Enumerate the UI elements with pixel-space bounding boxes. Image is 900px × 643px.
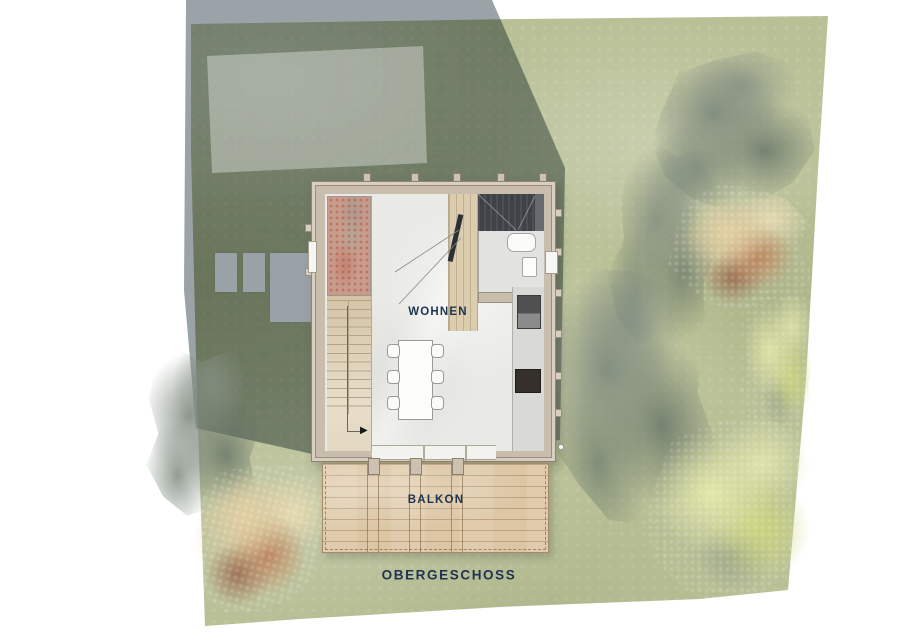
window xyxy=(308,241,317,273)
balcony-railing xyxy=(325,466,546,550)
door-mullion xyxy=(465,446,467,461)
house-floor-plan: ▶ xyxy=(311,181,556,462)
room-label-living: WOHNEN xyxy=(408,306,468,318)
floor-caption: OBERGESCHOSS xyxy=(382,568,517,583)
roof-dormer xyxy=(243,253,265,292)
facade-post xyxy=(363,173,371,182)
balcony-door-post xyxy=(452,458,464,475)
wall-anchor-tab xyxy=(555,330,562,338)
window xyxy=(545,251,558,274)
wall-anchor-tab xyxy=(555,289,562,297)
balcony-door-post xyxy=(368,458,380,475)
room-label-balcony: BALKON xyxy=(408,494,464,506)
roof-dormer xyxy=(215,253,237,292)
balcony-door-post xyxy=(410,458,422,475)
door-mullion xyxy=(423,446,425,461)
south-glass-doors xyxy=(372,445,496,460)
facade-post xyxy=(539,173,547,182)
downspout-marker xyxy=(558,444,564,450)
facade-post xyxy=(497,173,505,182)
site-plan-canvas: ▶ xyxy=(0,0,900,643)
facade-post xyxy=(411,173,419,182)
roof-dormer xyxy=(270,253,312,322)
wall-anchor-tab xyxy=(305,224,312,232)
wall-anchor-tab xyxy=(555,372,562,380)
annotation-leader-lines xyxy=(325,194,544,451)
balcony-deck xyxy=(322,463,549,553)
facade-post xyxy=(453,173,461,182)
wall-anchor-tab xyxy=(555,209,562,217)
floor-area: ▶ xyxy=(325,194,544,451)
wall-anchor-tab xyxy=(555,409,562,417)
